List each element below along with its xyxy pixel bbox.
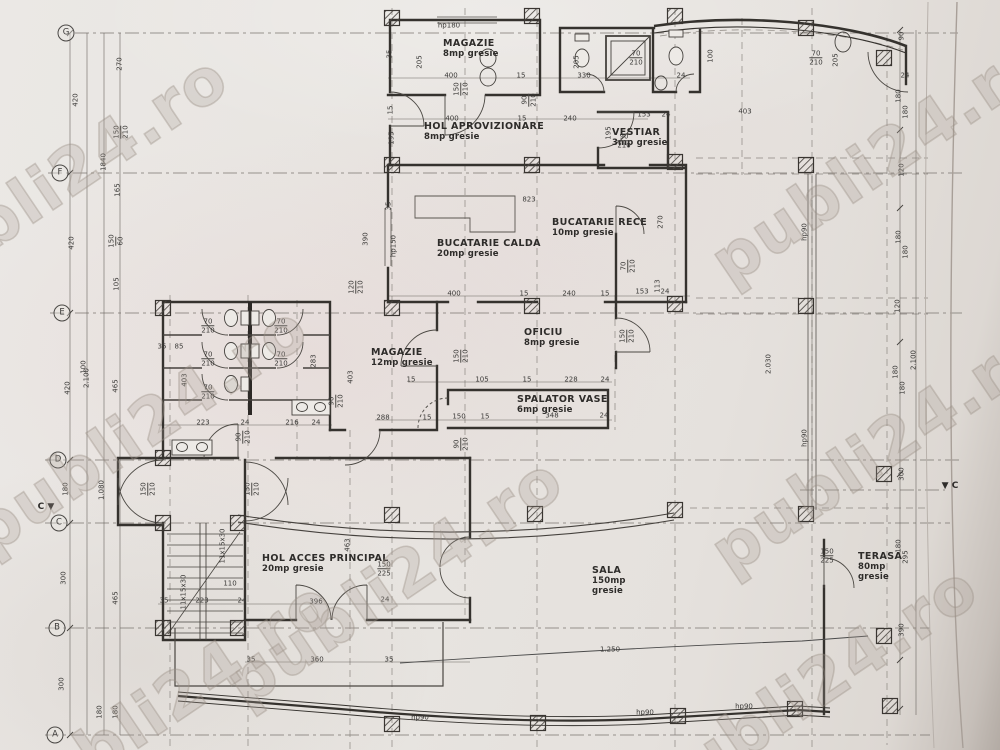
dimension-label: 24 <box>677 73 686 80</box>
label-overlay: MAGAZIE8mp gresieHOL APROVIZIONARE8mp gr… <box>0 0 1000 750</box>
dimension-label: 823 <box>522 197 535 204</box>
dimension-label: 105 <box>475 377 488 384</box>
room-area: 20mp gresie <box>437 249 541 259</box>
room-label: BUCATARIE RECE10mp gresie <box>552 217 647 238</box>
dimension-label: 153 <box>635 289 648 296</box>
dimension-label: 70210 <box>201 351 214 367</box>
dimension-label: 403 <box>348 370 355 383</box>
dimension-label: 150210 <box>619 329 635 342</box>
dimension-label: hp150 <box>391 235 398 257</box>
room-area: 150mp <box>592 576 626 586</box>
dimension-label: 150225 <box>820 548 833 564</box>
watermark: publi24.ro <box>0 565 347 750</box>
dimension-label: 150210 <box>453 349 469 362</box>
room-name: HOL ACCES PRINCIPAL <box>262 553 389 564</box>
dimension-label: 223 <box>195 598 208 605</box>
dimension-label: 24 <box>601 377 610 384</box>
dimension-label: hp90 <box>411 715 429 722</box>
dimension-label: 403 <box>738 109 751 116</box>
dimension-label: 2.100 <box>84 368 91 388</box>
dimension-label: 15 <box>423 415 432 422</box>
dimension-label: hp90 <box>735 704 753 711</box>
room-name: SALA <box>592 565 626 576</box>
dimension-label: 465 <box>113 591 120 604</box>
dimension-label: 110 <box>223 581 236 588</box>
dimension-label: 223 <box>196 420 209 427</box>
room-name: BUCATARIE CALDA <box>437 238 541 249</box>
room-area: 20mp gresie <box>262 564 389 574</box>
room-label: TERASA80mpgresie <box>858 551 902 582</box>
dimension-label: 195 <box>389 131 396 144</box>
dimension-label: 120 <box>899 163 906 176</box>
dimension-label: 90210 <box>328 394 344 407</box>
dimension-label: 240 <box>563 116 576 123</box>
dimension-label: 2.100 <box>911 350 918 370</box>
dimension-label: 240 <box>562 291 575 298</box>
room-area: 8mp gresie <box>443 49 499 59</box>
dimension-label: 150225 <box>377 561 390 577</box>
dimension-label: 15060 <box>108 234 124 247</box>
grid-axis-marker: A <box>47 727 64 744</box>
room-name: MAGAZIE <box>443 38 499 49</box>
room-label: OFICIU8mp gresie <box>524 327 580 348</box>
dimension-label: 120 <box>895 299 902 312</box>
grid-axis-marker: D <box>50 452 67 469</box>
dimension-label: 70210 <box>274 318 287 334</box>
section-cut-marker: C ▼ <box>38 502 55 512</box>
watermark: publi24.ro <box>698 20 1000 299</box>
dimension-label: 1.250 <box>600 647 620 654</box>
dimension-label: 24 <box>661 289 670 296</box>
dimension-label: 420 <box>73 93 80 106</box>
dimension-label: 24 <box>312 420 321 427</box>
dimension-label: 150 <box>452 414 465 421</box>
dimension-label: 90210 <box>521 93 537 106</box>
dimension-label: 90 <box>899 32 906 41</box>
dimension-label: 300 <box>61 571 68 584</box>
room-area: 10mp gresie <box>552 228 647 238</box>
grid-axis-marker: F <box>52 165 69 182</box>
room-label: MAGAZIE12mp gresie <box>371 347 433 368</box>
dimension-label: 15 <box>407 377 416 384</box>
dimension-label: 270 <box>117 57 124 70</box>
dimension-label: 180 <box>113 705 120 718</box>
room-label: SPALATOR VASE6mp gresie <box>517 394 608 415</box>
dimension-label: 15 <box>520 291 529 298</box>
section-cut-marker: ▼ C <box>942 481 959 491</box>
dimension-label: 35 <box>386 202 393 211</box>
dimension-label: 270 <box>658 215 665 228</box>
dimension-label: 180 <box>63 482 70 495</box>
dimension-label: 180 <box>903 105 910 118</box>
dimension-label: 24 <box>241 420 250 427</box>
watermark: publi24.ro <box>213 442 578 721</box>
dimension-label: 165 <box>115 183 122 196</box>
dimension-label: 105 <box>114 277 121 290</box>
dimension-label: 153 <box>637 112 650 119</box>
dimension-label: 403 <box>182 373 189 386</box>
dimension-label: 120210 <box>348 280 364 293</box>
dimension-label: 180 <box>97 705 104 718</box>
dimension-label: 70210 <box>809 50 822 66</box>
dimension-label: 15 <box>481 414 490 421</box>
room-area: 80mp <box>858 562 902 572</box>
dimension-label: 15 <box>388 106 395 115</box>
dimension-label: 70210 <box>274 351 287 367</box>
dimension-label: 400 <box>447 291 460 298</box>
dimension-label: 35 <box>247 657 256 664</box>
dimension-label: 90210 <box>617 133 630 149</box>
room-label: SALA150mpgresie <box>592 565 626 596</box>
room-name: BUCATARIE RECE <box>552 217 647 228</box>
dimension-label: hp90 <box>802 429 809 447</box>
dimension-label: 180 <box>903 245 910 258</box>
dimension-label: 15 <box>518 116 527 123</box>
dimension-label: 400 <box>444 73 457 80</box>
dimension-label: 70210 <box>629 50 642 66</box>
dimension-label: 1840 <box>101 153 108 171</box>
dimension-label: 180 <box>893 365 900 378</box>
dimension-label: 24 <box>238 598 247 605</box>
watermark: publi24.ro <box>698 310 1000 589</box>
dimension-label: 35 <box>385 657 394 664</box>
dimension-label: 205 <box>833 53 840 66</box>
dimension-label: 11x15x30 <box>220 528 227 563</box>
dimension-label: 465 <box>113 379 120 392</box>
room-name: OFICIU <box>524 327 580 338</box>
dimension-label: 70210 <box>620 259 636 272</box>
dimension-label: 2.030 <box>766 354 773 374</box>
dimension-label: 35 <box>158 344 167 351</box>
dimension-label: 360 <box>310 657 323 664</box>
room-area: 6mp gresie <box>517 405 608 415</box>
dimension-label: 300 <box>899 467 906 480</box>
dimension-label: hp90 <box>636 710 654 717</box>
dimension-label: 1.080 <box>99 480 106 500</box>
dimension-label: 70210 <box>201 384 214 400</box>
dimension-label: 150210 <box>140 482 156 495</box>
dimension-label: hp180 <box>438 23 460 30</box>
dimension-label: 90210 <box>235 430 251 443</box>
dimension-label: 180 <box>896 89 903 102</box>
dimension-label: 15 <box>523 377 532 384</box>
dimension-label: 420 <box>69 236 76 249</box>
dimension-label: 390 <box>899 623 906 636</box>
dimension-label: 300 <box>59 677 66 690</box>
room-area: 8mp gresie <box>424 132 544 142</box>
grid-axis-marker: B <box>49 620 66 637</box>
dimension-label: 348 <box>545 413 558 420</box>
dimension-label: 396 <box>309 599 322 606</box>
room-area: 12mp gresie <box>371 358 433 368</box>
dimension-label: 288 <box>376 415 389 422</box>
dimension-label: 390 <box>363 232 370 245</box>
dimension-label: 205 <box>417 55 424 68</box>
floorplan-page: MAGAZIE8mp gresieHOL APROVIZIONARE8mp gr… <box>0 0 1000 750</box>
dimension-label: 216 <box>285 420 298 427</box>
dimension-label: 295 <box>903 550 910 563</box>
dimension-label: 24 <box>381 597 390 604</box>
dimension-label: 180 <box>896 230 903 243</box>
dimension-label: 35 <box>160 598 169 605</box>
dimension-label: 24 <box>662 112 671 119</box>
dimension-label: 85 <box>175 344 184 351</box>
grid-axis-marker: E <box>54 305 71 322</box>
room-label: MAGAZIE8mp gresie <box>443 38 499 59</box>
room-area: gresie <box>858 572 902 582</box>
watermark: publi24.ro <box>0 40 242 319</box>
dimension-label: hp90 <box>802 223 809 241</box>
dimension-label: 400 <box>445 116 458 123</box>
dimension-label: 283 <box>311 354 318 367</box>
room-area: 8mp gresie <box>524 338 580 348</box>
dimension-label: 180 <box>900 381 907 394</box>
dimension-label: 150210 <box>244 482 260 495</box>
dimension-label: 100 <box>708 49 715 62</box>
dimension-label: 330 <box>577 73 590 80</box>
dimension-label: 35 <box>387 50 394 59</box>
dimension-label: 15 <box>601 291 610 298</box>
dimension-label: 90210 <box>453 437 469 450</box>
room-name: HOL APROVIZIONARE <box>424 121 544 132</box>
dimension-label: 150210 <box>113 125 129 138</box>
room-name: MAGAZIE <box>371 347 433 358</box>
watermark: publi24.ro <box>628 550 993 750</box>
dimension-label: 15 <box>517 73 526 80</box>
grid-axis-marker: C <box>51 515 68 532</box>
room-label: HOL ACCES PRINCIPAL20mp gresie <box>262 553 389 574</box>
room-label: BUCATARIE CALDA20mp gresie <box>437 238 541 259</box>
dimension-label: 24 <box>600 413 609 420</box>
dimension-label: 463 <box>345 538 352 551</box>
room-area: gresie <box>592 586 626 596</box>
dimension-label: 205 <box>574 55 581 68</box>
dimension-label: 24 <box>901 73 910 80</box>
dimension-label: 228 <box>564 377 577 384</box>
dimension-label: 11x15x30 <box>181 574 188 609</box>
dimension-label: 113 <box>655 279 662 292</box>
dimension-label: 195 <box>606 126 613 139</box>
dimension-label: 420 <box>65 381 72 394</box>
grid-axis-marker: G <box>58 25 75 42</box>
room-name: SPALATOR VASE <box>517 394 608 405</box>
dimension-label: 70210 <box>201 318 214 334</box>
room-label: HOL APROVIZIONARE8mp gresie <box>424 121 544 142</box>
dimension-label: 150210 <box>453 82 469 95</box>
